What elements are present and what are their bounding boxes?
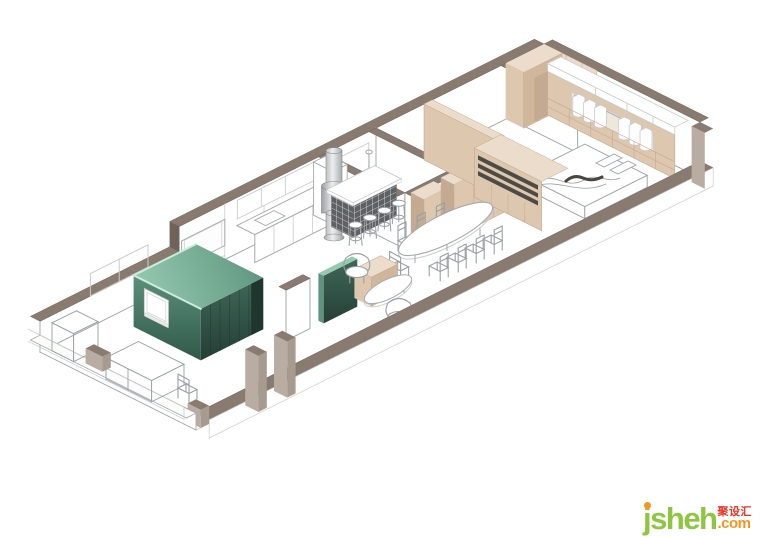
floorplan-svg: [0, 0, 760, 537]
watermark-domain-suffix: .com: [718, 518, 751, 531]
axon-apartment-rendering: jsheh 聚设汇 .com: [0, 0, 760, 537]
watermark-logo: jsheh 聚设汇 .com: [643, 507, 752, 531]
watermark-brand-text: jsheh: [643, 501, 716, 536]
tall-cabinet: [506, 63, 524, 128]
wardrobe-side-panel: [534, 71, 547, 121]
watermark-j-dot: [644, 502, 651, 509]
green-pod-opening: [251, 278, 263, 336]
